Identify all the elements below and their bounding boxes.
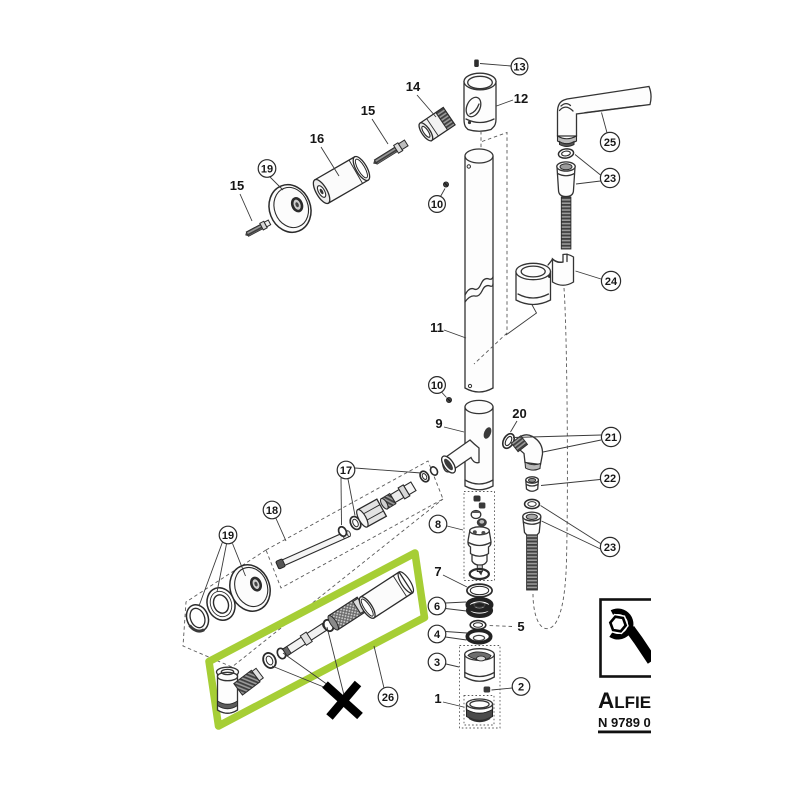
svg-text:15: 15 [361, 103, 375, 118]
svg-text:14: 14 [406, 79, 421, 94]
svg-text:3: 3 [434, 657, 440, 669]
svg-text:2: 2 [518, 682, 524, 694]
svg-text:12: 12 [514, 91, 528, 106]
svg-text:9: 9 [435, 416, 442, 431]
svg-text:N 9789 0: N 9789 0 [598, 715, 651, 730]
svg-text:13: 13 [513, 62, 525, 74]
svg-text:10: 10 [431, 380, 443, 392]
svg-text:19: 19 [222, 530, 234, 542]
svg-text:21: 21 [605, 432, 617, 444]
svg-text:15: 15 [230, 178, 244, 193]
svg-text:18: 18 [266, 505, 278, 517]
svg-text:19: 19 [261, 164, 273, 176]
svg-text:24: 24 [605, 276, 618, 288]
svg-text:17: 17 [340, 465, 352, 477]
svg-text:25: 25 [604, 137, 616, 149]
svg-text:7: 7 [434, 564, 441, 579]
svg-text:22: 22 [604, 473, 616, 485]
svg-text:16: 16 [310, 131, 324, 146]
svg-text:1: 1 [434, 691, 441, 706]
svg-text:5: 5 [517, 619, 524, 634]
svg-text:23: 23 [604, 173, 616, 185]
svg-text:11: 11 [430, 320, 444, 335]
svg-text:8: 8 [435, 519, 441, 531]
svg-text:20: 20 [512, 406, 526, 421]
svg-text:23: 23 [604, 542, 616, 554]
svg-text:6: 6 [434, 601, 440, 613]
svg-text:4: 4 [434, 629, 441, 641]
svg-text:10: 10 [431, 199, 443, 211]
svg-text:26: 26 [382, 692, 394, 704]
